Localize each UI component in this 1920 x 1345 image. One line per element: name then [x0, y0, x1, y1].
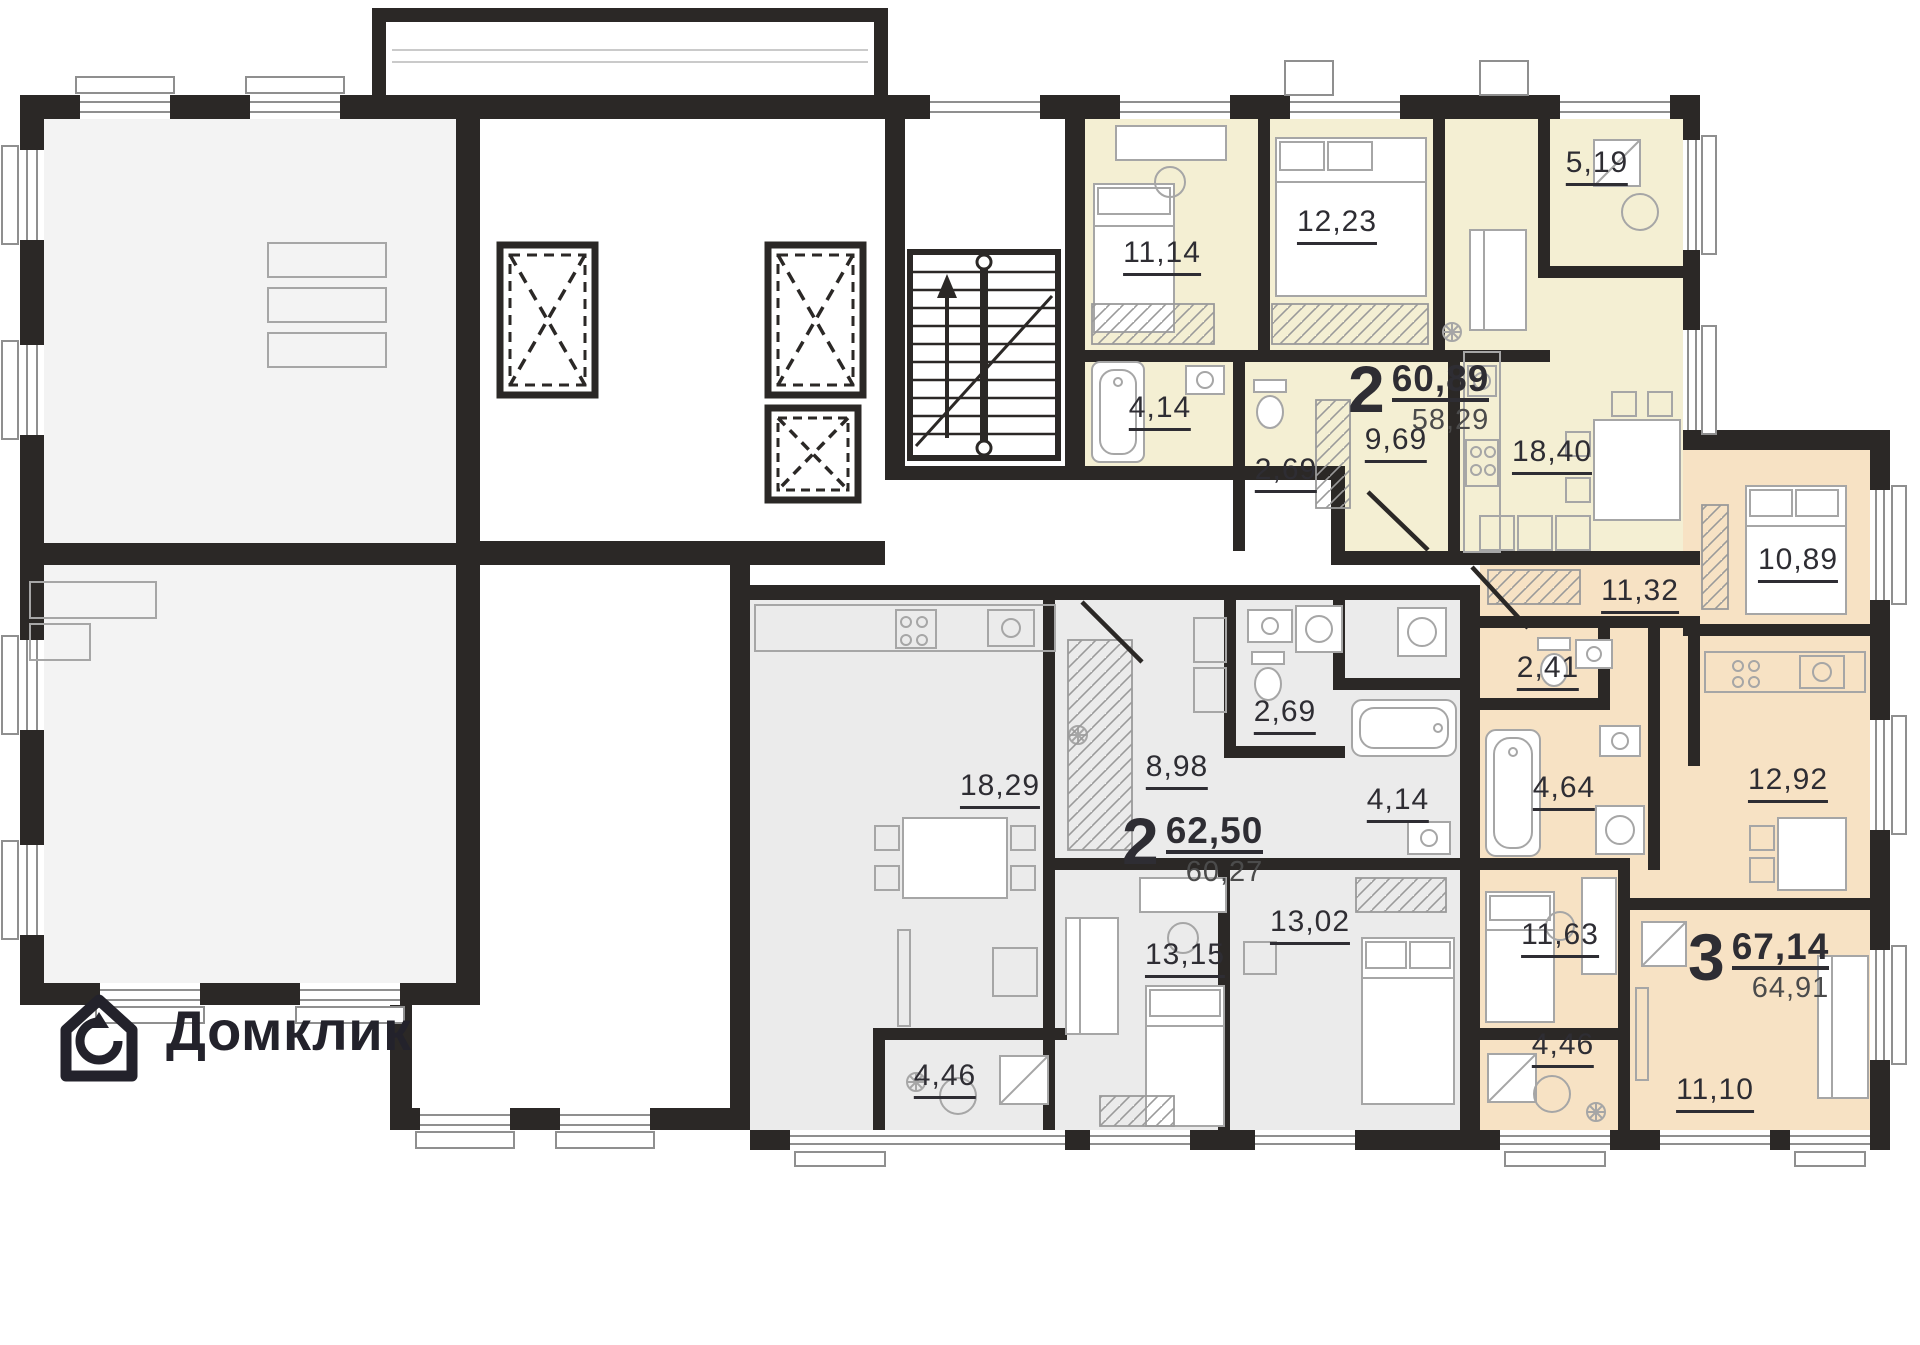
- armchair-icon: [1000, 1056, 1048, 1104]
- apartment-living-area: 64,91: [1752, 972, 1830, 1005]
- elevator-shaft: [768, 408, 858, 500]
- room-label-wc: 2,41: [1517, 651, 1579, 685]
- room-area-value: 12,92: [1748, 763, 1828, 803]
- room-area-value: 4,14: [1367, 783, 1429, 823]
- room-label-wc: 2,69: [1254, 695, 1316, 729]
- room-label-wc: 2,69: [1255, 453, 1317, 487]
- window: [1683, 326, 1716, 434]
- window: [1120, 95, 1230, 119]
- apartment-living-area: 58,29: [1412, 404, 1490, 437]
- apartment-headline-2room-top: 2 60,89 58,29: [1348, 360, 1489, 437]
- plant-icon: [1587, 1103, 1605, 1121]
- brand-logo: Домклик: [52, 982, 412, 1078]
- apartment-rooms-count: 2: [1348, 360, 1385, 418]
- apartment-headline-3room-right: 3 67,14 64,91: [1688, 928, 1829, 1005]
- room-area-value: 13,15: [1145, 938, 1225, 978]
- window: [76, 77, 174, 119]
- wardrobe-icon: [1100, 1096, 1174, 1126]
- apartment-rooms-count: 3: [1688, 928, 1725, 986]
- room-label-bedroom: 13,15: [1145, 938, 1225, 972]
- room-area-value: 4,14: [1129, 391, 1191, 431]
- window: [790, 1130, 890, 1166]
- apartment-total-area: 62,50: [1166, 812, 1264, 854]
- brand-logo-text: Домклик: [166, 998, 412, 1063]
- room-area-value: 12,23: [1297, 205, 1377, 245]
- window: [1870, 486, 1906, 604]
- room-area-value: 13,02: [1270, 905, 1350, 945]
- gallery-strip: [386, 22, 874, 86]
- room-area-value: 2,69: [1255, 453, 1317, 493]
- sink-icon: [1408, 822, 1450, 854]
- room-label-bathroom: 4,64: [1533, 771, 1595, 805]
- sink-icon: [1248, 610, 1292, 642]
- bathtub-icon: [1352, 700, 1456, 756]
- brand-logo-icon-spacer: [52, 982, 148, 1078]
- sofa-icon: [1470, 230, 1526, 330]
- window: [2, 146, 44, 244]
- window: [416, 1108, 514, 1148]
- room-area-value: 18,29: [960, 769, 1040, 809]
- floor-plan-drawing: .wl{fill:#2b2826;} .fill-y{fill:#f4efd3;…: [0, 0, 1920, 1345]
- window: [1290, 95, 1400, 119]
- room-label-kitchen: 12,92: [1748, 763, 1828, 797]
- wardrobe-icon: [1702, 505, 1728, 609]
- window: [1870, 946, 1906, 1064]
- window: [1255, 1130, 1355, 1150]
- room-area-value: 5,19: [1566, 146, 1628, 186]
- floor-plan-page: .wl{fill:#2b2826;} .fill-y{fill:#f4efd3;…: [0, 0, 1920, 1345]
- window: [1500, 1130, 1610, 1166]
- window-bay: [1480, 61, 1528, 95]
- apartment-headline-2room-bottom: 2 62,50 60,27: [1122, 812, 1263, 889]
- room-label-bedroom: 12,23: [1297, 205, 1377, 239]
- window: [1090, 1130, 1190, 1150]
- room-label-bedroom: 10,89: [1758, 543, 1838, 577]
- bed-icon: [1362, 938, 1454, 1104]
- window: [1790, 1130, 1870, 1166]
- window: [1683, 136, 1716, 254]
- room-area-value: 18,40: [1512, 435, 1592, 475]
- toilet-icon: [1254, 380, 1286, 428]
- room-label-loggia: 4,46: [1532, 1028, 1594, 1062]
- apartment-total-area: 60,89: [1392, 360, 1490, 402]
- room-label-living-room: 11,10: [1676, 1073, 1754, 1107]
- room-label-bedroom: 13,02: [1270, 905, 1350, 939]
- window: [556, 1108, 654, 1148]
- window: [2, 841, 44, 939]
- apartment-living-area: 60,27: [1186, 856, 1264, 889]
- room-area-value: 11,63: [1521, 918, 1599, 958]
- room-label-loggia: 4,46: [914, 1059, 976, 1093]
- wardrobe-icon: [1272, 304, 1428, 344]
- plant-icon: [1443, 323, 1461, 341]
- room-area-value: 4,46: [914, 1059, 976, 1099]
- apartment-rooms-count: 2: [1122, 812, 1159, 870]
- room-label-bathroom: 4,14: [1129, 391, 1191, 425]
- sink-icon: [1576, 640, 1612, 668]
- window: [885, 1130, 1065, 1150]
- room-label-kitchen-living: 18,40: [1512, 435, 1592, 469]
- window: [1660, 1130, 1770, 1150]
- window: [246, 77, 344, 119]
- room-area-value: 4,46: [1532, 1028, 1594, 1068]
- room-area-value: 11,14: [1123, 236, 1201, 276]
- sink-icon: [1600, 726, 1640, 756]
- room-area-value: 2,69: [1254, 695, 1316, 735]
- wardrobe-icon: [1356, 878, 1446, 912]
- sofa-icon: [1066, 918, 1118, 1034]
- room-area-value: 11,32: [1601, 574, 1679, 614]
- room-label-balcony: 5,19: [1566, 146, 1628, 180]
- washing-machine-icon: [1596, 806, 1644, 854]
- vacant-unit-bottom-left: [44, 565, 456, 983]
- washing-machine-icon: [1398, 608, 1446, 656]
- room-area-value: 2,41: [1517, 651, 1579, 691]
- window: [2, 636, 44, 734]
- armchair-icon: [1642, 922, 1686, 966]
- room-label-hallway: 8,98: [1146, 750, 1208, 784]
- window: [930, 95, 1040, 119]
- room-area-value: 11,10: [1676, 1073, 1754, 1113]
- room-label-kitchen-living: 18,29: [960, 769, 1040, 803]
- elevator-shaft: [500, 245, 595, 395]
- elevator-shaft: [768, 245, 863, 395]
- room-area-value: 10,89: [1758, 543, 1838, 583]
- window-bay: [1285, 61, 1333, 95]
- room-label-bedroom: 11,63: [1521, 918, 1599, 952]
- vacant-unit-top-left: [44, 119, 456, 543]
- window: [1560, 95, 1670, 119]
- toilet-icon: [1252, 652, 1284, 700]
- wardrobe-icon: [1316, 400, 1350, 508]
- washing-machine-icon: [1296, 606, 1342, 652]
- window: [2, 341, 44, 439]
- armchair-icon: [1488, 1054, 1536, 1102]
- apartment-total-area: 67,14: [1732, 928, 1830, 970]
- room-label-bathroom: 4,14: [1367, 783, 1429, 817]
- room-area-value: 8,98: [1146, 750, 1208, 790]
- room-label-bedroom: 11,14: [1123, 236, 1201, 270]
- window: [1870, 716, 1906, 834]
- staircase: [910, 252, 1058, 458]
- sink-icon: [1186, 366, 1224, 394]
- wardrobe-icon: [1092, 304, 1214, 344]
- room-label-hallway: 11,32: [1601, 574, 1679, 608]
- room-area-value: 4,64: [1533, 771, 1595, 811]
